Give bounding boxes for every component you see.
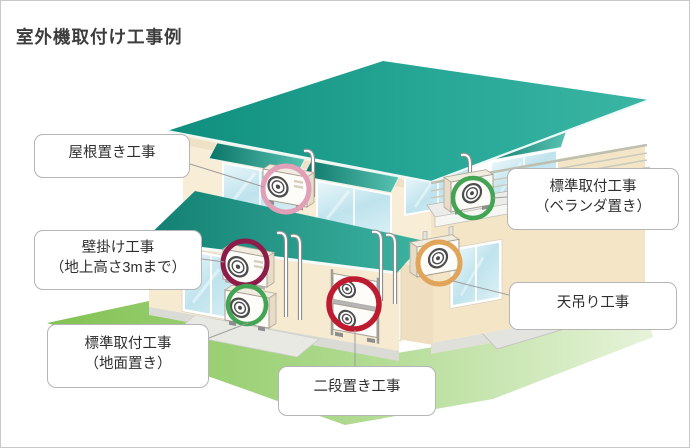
callout-label: 二段置き工事 [279,377,435,397]
page: 室外機取付け工事例 屋根置き工事 標準取付工事 （ベランダ置き） 壁掛け工事 （… [0,0,690,448]
callout-ground-standard: 標準取付工事 （地面置き） [47,324,209,388]
callout-label: 天吊り工事 [510,293,676,313]
callout-label: （地上高さ3mまで） [35,258,201,278]
callout-roof-mount: 屋根置き工事 [34,134,190,178]
page-title: 室外機取付け工事例 [16,24,183,49]
callout-veranda-standard: 標準取付工事 （ベランダ置き） [507,168,679,230]
callout-two-tier: 二段置き工事 [278,366,436,416]
callout-label: 標準取付工事 [508,177,678,197]
callout-label: 屋根置き工事 [35,143,189,163]
callout-ceiling-hang: 天吊り工事 [509,282,677,330]
callout-label: （地面置き） [48,354,208,374]
callout-wall-mount: 壁掛け工事 （地上高さ3mまで） [34,230,202,290]
callout-label: （ベランダ置き） [508,197,678,217]
callout-label: 標準取付工事 [48,334,208,354]
callout-label: 壁掛け工事 [35,238,201,258]
